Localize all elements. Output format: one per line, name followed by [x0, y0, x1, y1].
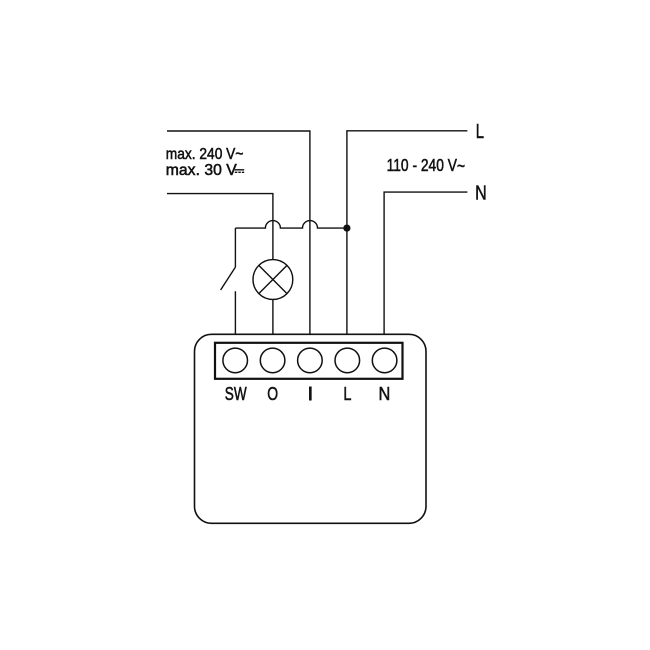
- svg-text:N: N: [378, 383, 390, 404]
- svg-text:I: I: [308, 383, 313, 404]
- svg-text:O: O: [267, 384, 278, 404]
- svg-text:max. 240 V~: max. 240 V~: [166, 145, 244, 163]
- svg-text:110 - 240 V~: 110 - 240 V~: [387, 156, 465, 176]
- svg-text:L: L: [476, 120, 484, 143]
- svg-text:L: L: [343, 383, 351, 404]
- svg-text:SW: SW: [225, 384, 247, 405]
- svg-text:max. 30 V: max. 30 V: [166, 162, 237, 179]
- svg-text:N: N: [475, 180, 487, 203]
